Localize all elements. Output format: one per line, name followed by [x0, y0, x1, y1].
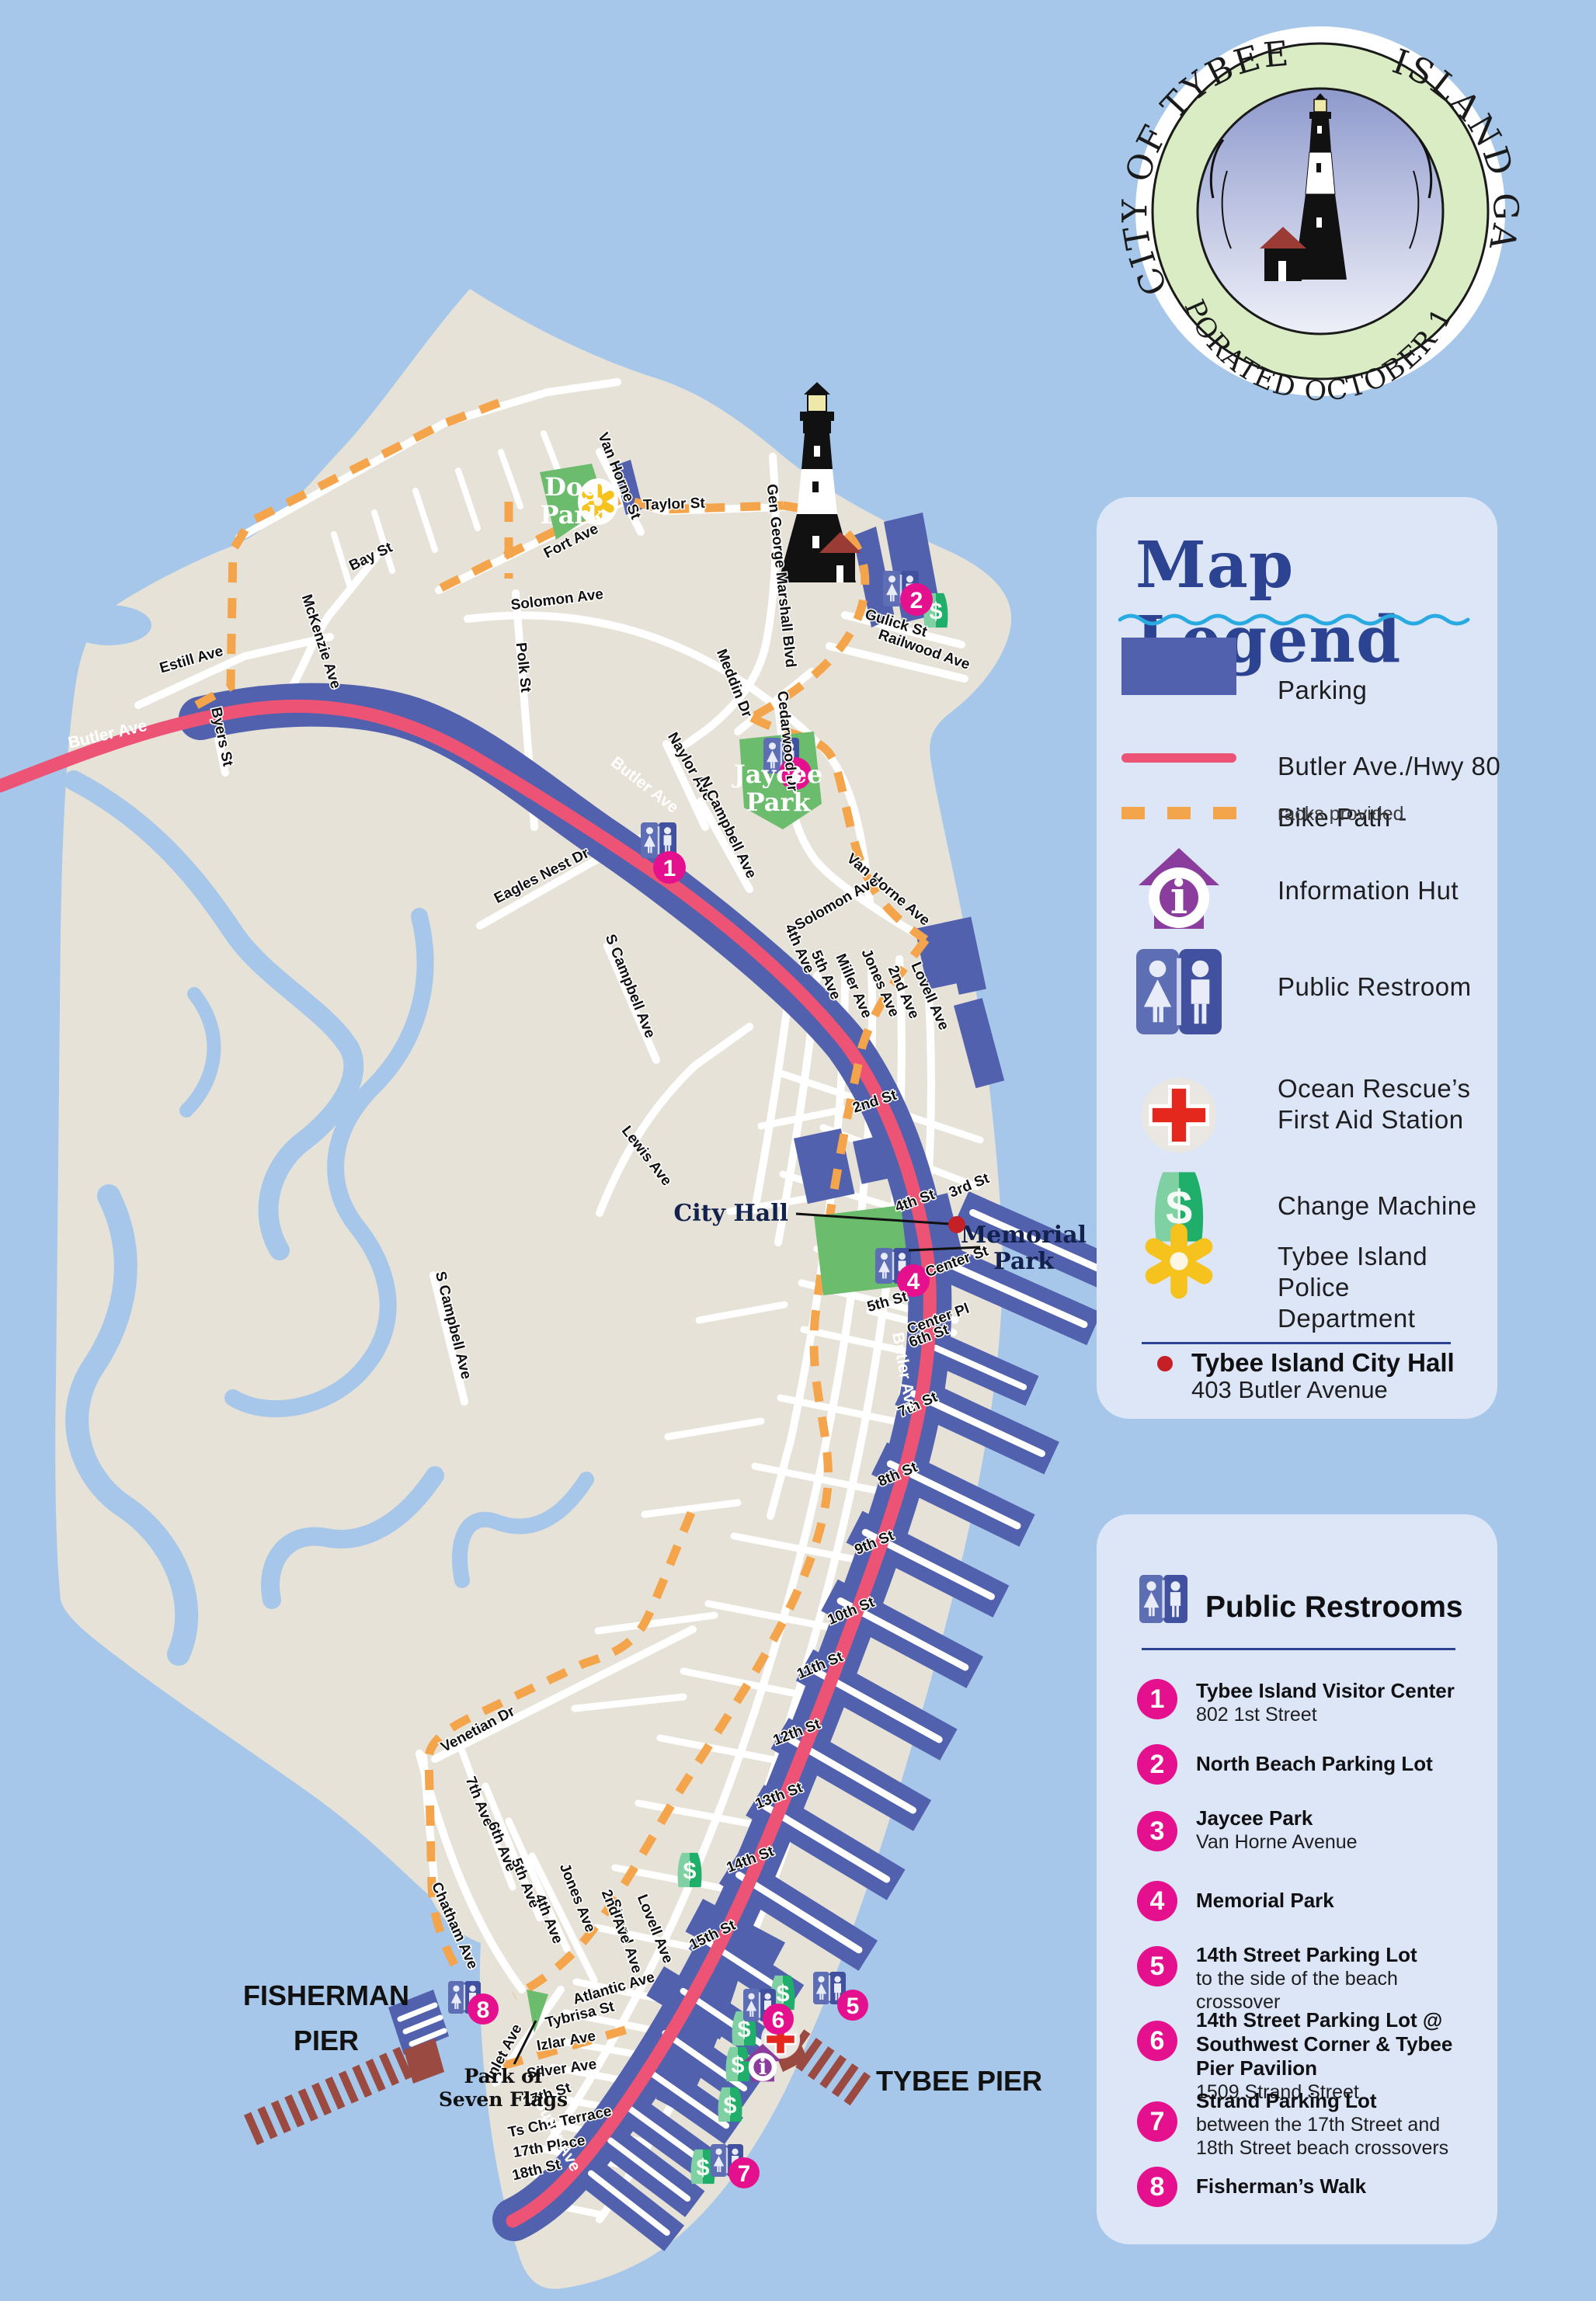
info-hut-legend-icon [1132, 845, 1226, 938]
restroom-entry: North Beach Parking Lot [1196, 1752, 1476, 1776]
legend-police-label1: Tybee Island [1278, 1242, 1427, 1270]
restroom-header-icon [1139, 1575, 1187, 1623]
police-legend-icon [1140, 1222, 1218, 1300]
city-hall-dot [948, 1216, 965, 1233]
public-restrooms-panel: Public Restrooms 1 Tybee Island Visitor … [1097, 1514, 1497, 2244]
svg-text:Park: Park [541, 500, 606, 530]
restroom-entry: 14th Street Parking Lot to the side of t… [1196, 1943, 1476, 2014]
restroom-marker-5: 5 [1137, 1946, 1177, 1986]
restroom-legend-icon [1136, 949, 1222, 1034]
tybee-pier-label: TYBEE PIER [876, 2065, 1042, 2097]
legend-butler-label: Butler Ave./Hwy 80 [1278, 752, 1500, 781]
restroom-entry: Tybee Island Visitor Center 802 1st Stre… [1196, 1679, 1476, 1726]
svg-text:Seven Flags: Seven Flags [439, 2088, 568, 2111]
legend-cityhall-addr: 403 Butler Avenue [1191, 1376, 1388, 1404]
svg-text:6: 6 [772, 2007, 785, 2033]
restroom-marker-7: 7 [1137, 2101, 1177, 2142]
tybee-island-map-poster: $ i [0, 0, 1596, 2301]
legend-change-label: Change Machine [1278, 1191, 1477, 1221]
dog-park-label: Dog [544, 472, 600, 502]
svg-text:1: 1 [663, 856, 676, 881]
restroom-entry: Strand Parking Lot between the 17th Stre… [1196, 2089, 1476, 2160]
seven-flags-label: Park of [464, 2065, 544, 2087]
svg-text:5: 5 [847, 1993, 860, 2019]
svg-text:8: 8 [477, 1997, 490, 2023]
svg-text:4: 4 [907, 1269, 920, 1295]
svg-text:Park: Park [993, 1248, 1055, 1275]
legend-restroom-label: Public Restroom [1278, 972, 1472, 1002]
restroom-marker-6: 6 [1137, 2021, 1177, 2061]
svg-text:Park: Park [746, 787, 812, 817]
legend-parking-label: Parking [1278, 676, 1367, 705]
restroom-marker-8: 8 [1137, 2167, 1177, 2207]
wavy-divider [1118, 610, 1477, 627]
restroom-entry: Jaycee Park Van Horne Avenue [1196, 1806, 1476, 1854]
city-hall-dot-legend [1157, 1356, 1173, 1371]
svg-text:PIER: PIER [294, 2025, 359, 2056]
legend-bike-note: racks provided [1278, 803, 1404, 826]
memorial-park-label: Memorial [961, 1222, 1087, 1249]
restroom-marker-1: 1 [1137, 1679, 1177, 1719]
svg-text:2: 2 [910, 588, 923, 613]
first-aid-legend-icon [1140, 1076, 1218, 1154]
restroom-entry: Fisherman’s Walk [1196, 2174, 1476, 2198]
legend-aid-label1: Ocean Rescue’s [1278, 1074, 1471, 1103]
butler-line-sw [1121, 753, 1236, 763]
restrooms-title: Public Restrooms [1205, 1590, 1463, 1625]
bike-dashes-swatch [1121, 806, 1236, 820]
jaycee-park-label: Jaycee [732, 759, 823, 789]
restrooms-divider [1142, 1648, 1455, 1650]
legend-police-label2: Police Department [1278, 1273, 1415, 1333]
restroom-marker-3: 3 [1137, 1811, 1177, 1851]
legend-divider [1142, 1342, 1451, 1344]
restroom-marker-2: 2 [1137, 1744, 1177, 1785]
legend-cityhall-title: Tybee Island City Hall [1191, 1348, 1455, 1378]
legend-info-label: Information Hut [1278, 876, 1459, 905]
svg-text:Taylor St: Taylor St [643, 495, 706, 514]
city-hall-label: City Hall [673, 1200, 788, 1227]
svg-text:7: 7 [738, 2161, 751, 2187]
restroom-entry: Memorial Park [1196, 1889, 1476, 1913]
fisherman-pier-label: FISHERMAN [243, 1979, 409, 2011]
map-legend-panel: Map Legend Parking Butler Ave./Hwy 80 Bi… [1097, 497, 1497, 1419]
legend-aid-label2: First Aid Station [1278, 1105, 1464, 1134]
restroom-marker-4: 4 [1137, 1881, 1177, 1921]
parking-swatch [1121, 638, 1236, 695]
